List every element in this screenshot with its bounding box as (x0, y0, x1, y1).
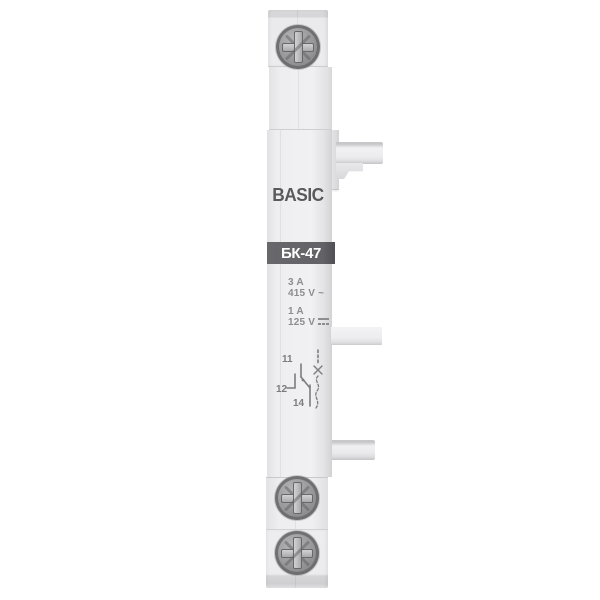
housing-seam (280, 130, 281, 477)
contact-pivot-dot (302, 379, 305, 382)
terminal-screw-bottom (275, 531, 319, 575)
screw-slot-vertical (293, 537, 302, 569)
bottom-mounting-pin (332, 440, 375, 460)
actuator-cross-icon (314, 366, 322, 374)
linkage-squiggle (316, 376, 319, 408)
top-latch-tab (336, 163, 363, 179)
terminal-screw-middle (275, 476, 319, 520)
screw-slot-vertical (293, 482, 302, 514)
dc-voltage-text: 125 V (288, 317, 315, 328)
product-photo: BASIC БК-47 3 A 415 V ~ 1 A 125 V (0, 0, 600, 600)
ac-voltage: 415 V ~ (288, 288, 338, 299)
moving-contact-blade (301, 377, 310, 388)
terminal-12-contact (287, 374, 295, 388)
model-label: БК-47 (281, 245, 321, 262)
middle-coupling-tab (331, 327, 382, 345)
ac-current: 3 A (288, 277, 338, 288)
dc-current: 1 A (288, 306, 338, 317)
housing-seam (298, 67, 299, 129)
upper-housing-section (269, 67, 332, 130)
dc-symbol-icon (318, 318, 329, 325)
ratings-block: 3 A 415 V ~ 1 A 125 V (288, 277, 338, 335)
terminal-label-12: 12 (276, 384, 288, 395)
screw-slot-vertical (294, 31, 303, 63)
dc-voltage: 125 V (288, 317, 338, 328)
model-label-band: БК-47 (267, 242, 335, 264)
terminal-label-11: 11 (282, 354, 293, 365)
brand-logo: BASIC (268, 185, 328, 206)
contact-schematic: 11 12 14 (276, 348, 328, 410)
top-mounting-pin (336, 142, 383, 164)
dc-rating: 1 A 125 V (288, 306, 338, 328)
terminal-screw-top (276, 25, 320, 69)
terminal-label-14: 14 (293, 398, 305, 409)
ac-rating: 3 A 415 V ~ (288, 277, 338, 299)
